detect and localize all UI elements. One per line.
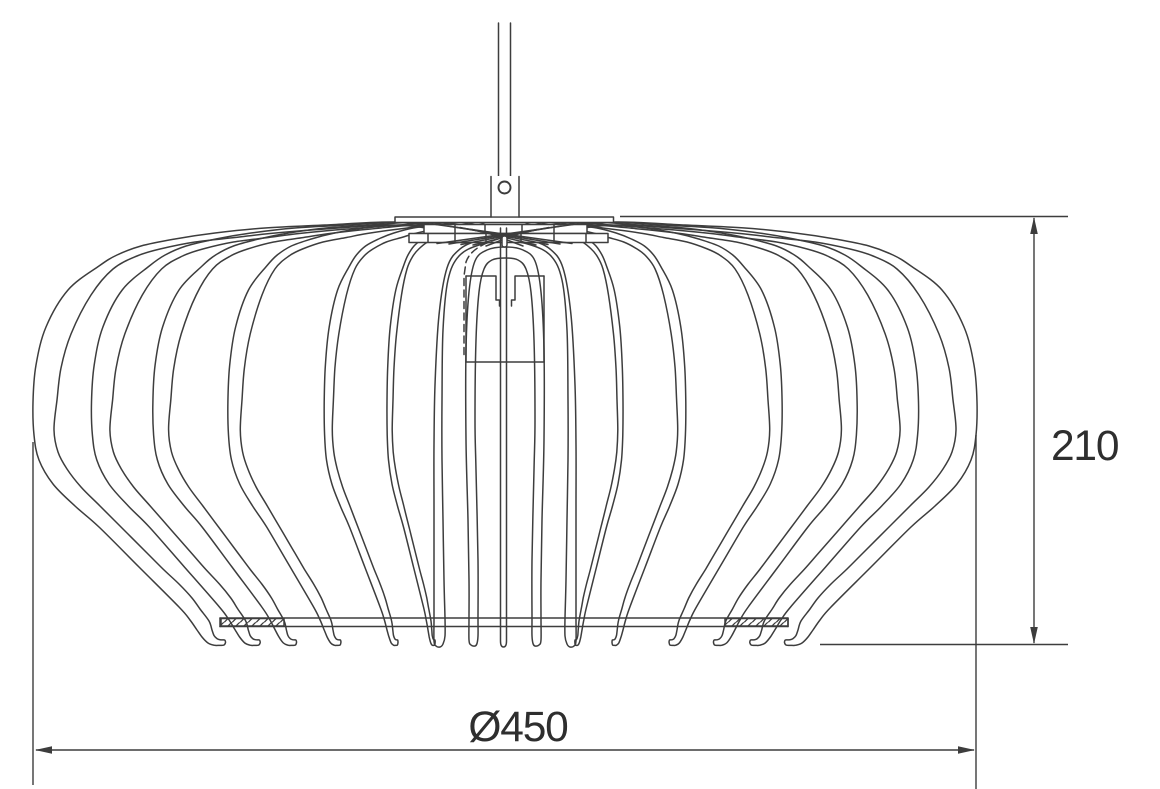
svg-text:210: 210 <box>1051 423 1118 470</box>
svg-text:Ø450: Ø450 <box>468 704 567 751</box>
